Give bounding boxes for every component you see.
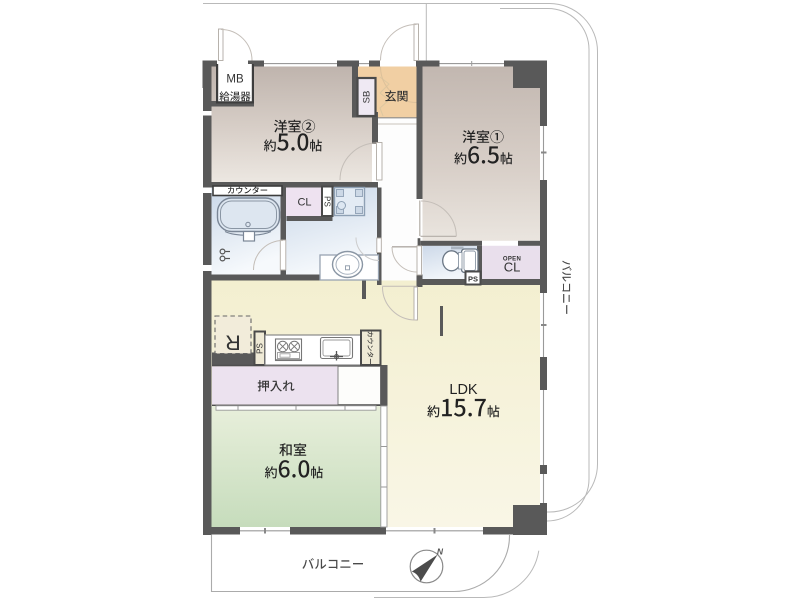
svg-text:PS: PS	[468, 275, 478, 284]
svg-text:LDK: LDK	[449, 382, 478, 398]
svg-text:MB: MB	[226, 74, 244, 86]
svg-text:R: R	[225, 331, 241, 355]
svg-text:N: N	[437, 547, 444, 557]
svg-text:CL: CL	[297, 197, 311, 209]
svg-text:PS: PS	[323, 196, 332, 207]
svg-text:PS: PS	[255, 343, 264, 354]
svg-text:SB: SB	[362, 91, 373, 104]
svg-text:CL: CL	[504, 260, 521, 275]
